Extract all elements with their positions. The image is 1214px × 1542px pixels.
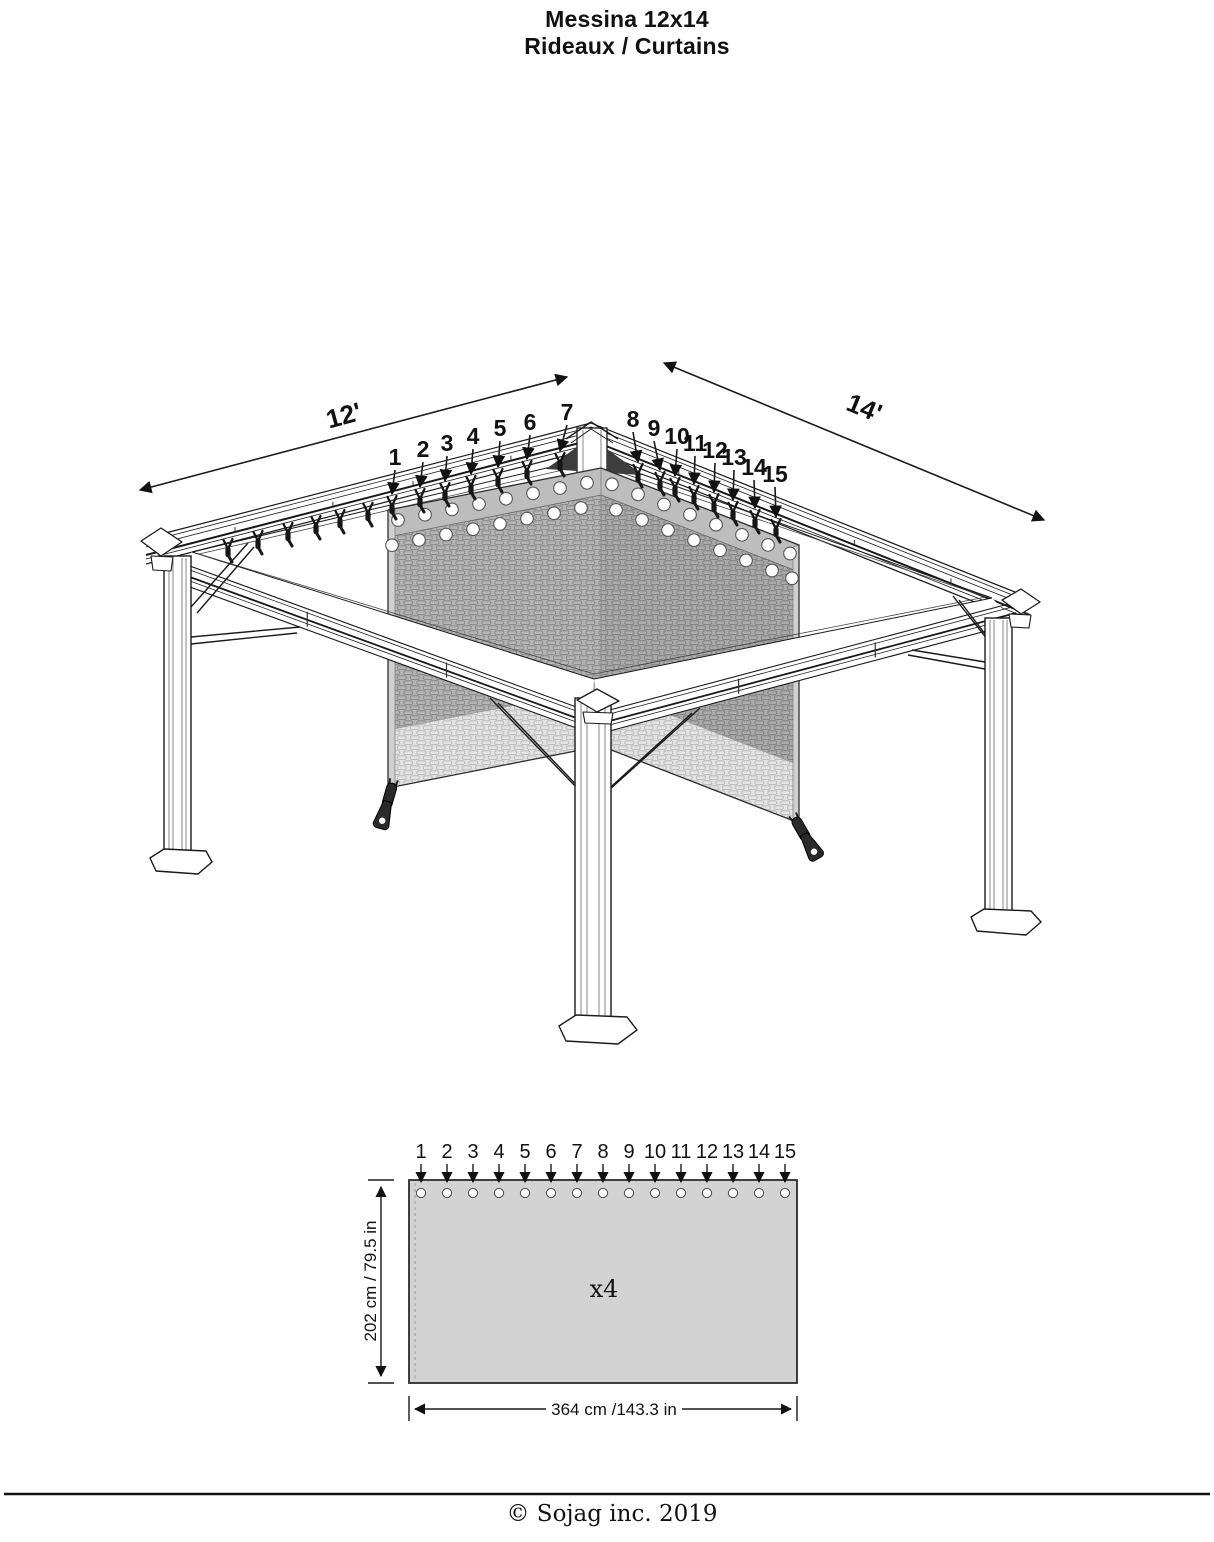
curtain-panel-diagram: 123456789101112131415 x4 202 cm / 79.5 i… <box>361 1141 797 1421</box>
clip-number-label: 8 <box>627 406 640 432</box>
grommet-number-label: 4 <box>493 1141 504 1163</box>
panel-height-dimension-label: 202 cm / 79.5 in <box>361 1221 380 1342</box>
clip-leader-arrow <box>714 463 715 492</box>
flat-panel-drawing: 123456789101112131415 <box>368 1141 797 1421</box>
grommet <box>468 1188 477 1197</box>
grommet-number-label: 10 <box>644 1141 666 1163</box>
grommet <box>650 1188 659 1197</box>
grommet <box>598 1188 607 1197</box>
grommet <box>610 504 623 517</box>
grommet <box>728 1188 737 1197</box>
grommet-number-label: 7 <box>571 1141 582 1163</box>
grommet <box>702 1188 711 1197</box>
gazebo-diagram: 12' 14' 123456789101112131415 <box>140 363 1044 1044</box>
grommet-number-label: 11 <box>671 1141 692 1163</box>
grommet <box>632 488 645 501</box>
clip-number-label: 7 <box>561 399 574 425</box>
grommet <box>606 478 619 491</box>
clip-leader-arrow <box>694 456 695 484</box>
grommet-number-label: 2 <box>441 1141 452 1163</box>
clip-number-label: 2 <box>417 436 430 462</box>
grommet <box>440 528 453 541</box>
grommet <box>662 524 675 537</box>
grommet <box>572 1188 581 1197</box>
clip-number-label: 6 <box>524 409 537 435</box>
grommet <box>688 534 701 547</box>
grommet <box>684 508 697 521</box>
grommet <box>714 544 727 557</box>
grommet-number-label: 6 <box>545 1141 556 1163</box>
grommet <box>413 534 426 547</box>
clip-leader-arrow <box>675 449 677 476</box>
grommet <box>467 523 480 536</box>
grommet-number-label: 9 <box>623 1141 634 1163</box>
grommet <box>736 529 749 542</box>
grommet <box>766 564 779 577</box>
grommet <box>624 1188 633 1197</box>
grommet <box>442 1188 451 1197</box>
panel-width-dimension-label: 364 cm /143.3 in <box>551 1400 677 1419</box>
grommet <box>419 508 432 521</box>
grommet-number-label: 12 <box>696 1141 718 1163</box>
grommet <box>520 1188 529 1197</box>
panel-quantity-label: x4 <box>590 1275 619 1303</box>
grommet <box>494 1188 503 1197</box>
grommet-number-label: 13 <box>722 1141 744 1163</box>
grommet <box>575 502 588 515</box>
grommet-number-label: 8 <box>597 1141 608 1163</box>
grommet <box>784 547 797 560</box>
grommet <box>554 482 567 495</box>
grommet <box>676 1188 685 1197</box>
grommet <box>658 498 671 511</box>
grommet-number-label: 15 <box>774 1141 796 1163</box>
clip-leader-arrow <box>733 470 734 500</box>
dimension-label-14ft: 14' <box>842 387 886 428</box>
clip-number-label: 5 <box>494 415 507 441</box>
grommet <box>780 1188 789 1197</box>
grommet-number-label: 5 <box>519 1141 530 1163</box>
grommet <box>740 554 753 567</box>
grommet <box>500 492 513 505</box>
footer-copyright: © Sojag inc. 2019 <box>507 1501 718 1527</box>
grommet <box>710 518 723 531</box>
dimension-label-12ft: 12' <box>323 396 365 434</box>
gazebo-post <box>985 618 1012 920</box>
grommet <box>527 487 540 500</box>
clip-number-label: 9 <box>648 415 661 441</box>
grommet-number-label: 1 <box>415 1141 426 1163</box>
zipper-pull-icon <box>786 810 825 862</box>
clip-number-label: 4 <box>467 423 480 449</box>
gazebo-post <box>575 698 611 1034</box>
clip-number-label: 1 <box>389 444 402 470</box>
manual-illustration-canvas: 12' 14' 123456789101112131415 1234567891… <box>0 0 1214 1542</box>
grommet <box>546 1188 555 1197</box>
clip-number-label: 3 <box>441 430 454 456</box>
clip-leader-arrow <box>775 487 776 517</box>
grommet <box>786 572 799 585</box>
grommet <box>762 539 775 552</box>
grommet <box>416 1188 425 1197</box>
curtain-clip-icon <box>523 461 532 484</box>
grommet <box>386 539 399 552</box>
grommet <box>581 476 594 489</box>
gazebo-post <box>164 556 191 858</box>
grommet <box>521 512 534 525</box>
grommet <box>754 1188 763 1197</box>
grommet-number-label: 14 <box>748 1141 770 1163</box>
clip-leader-arrow <box>754 480 755 508</box>
grommet <box>494 518 507 531</box>
clip-number-label: 15 <box>762 461 788 487</box>
grommet-number-label: 3 <box>467 1141 478 1163</box>
grommet <box>548 507 561 520</box>
grommet <box>636 514 649 527</box>
